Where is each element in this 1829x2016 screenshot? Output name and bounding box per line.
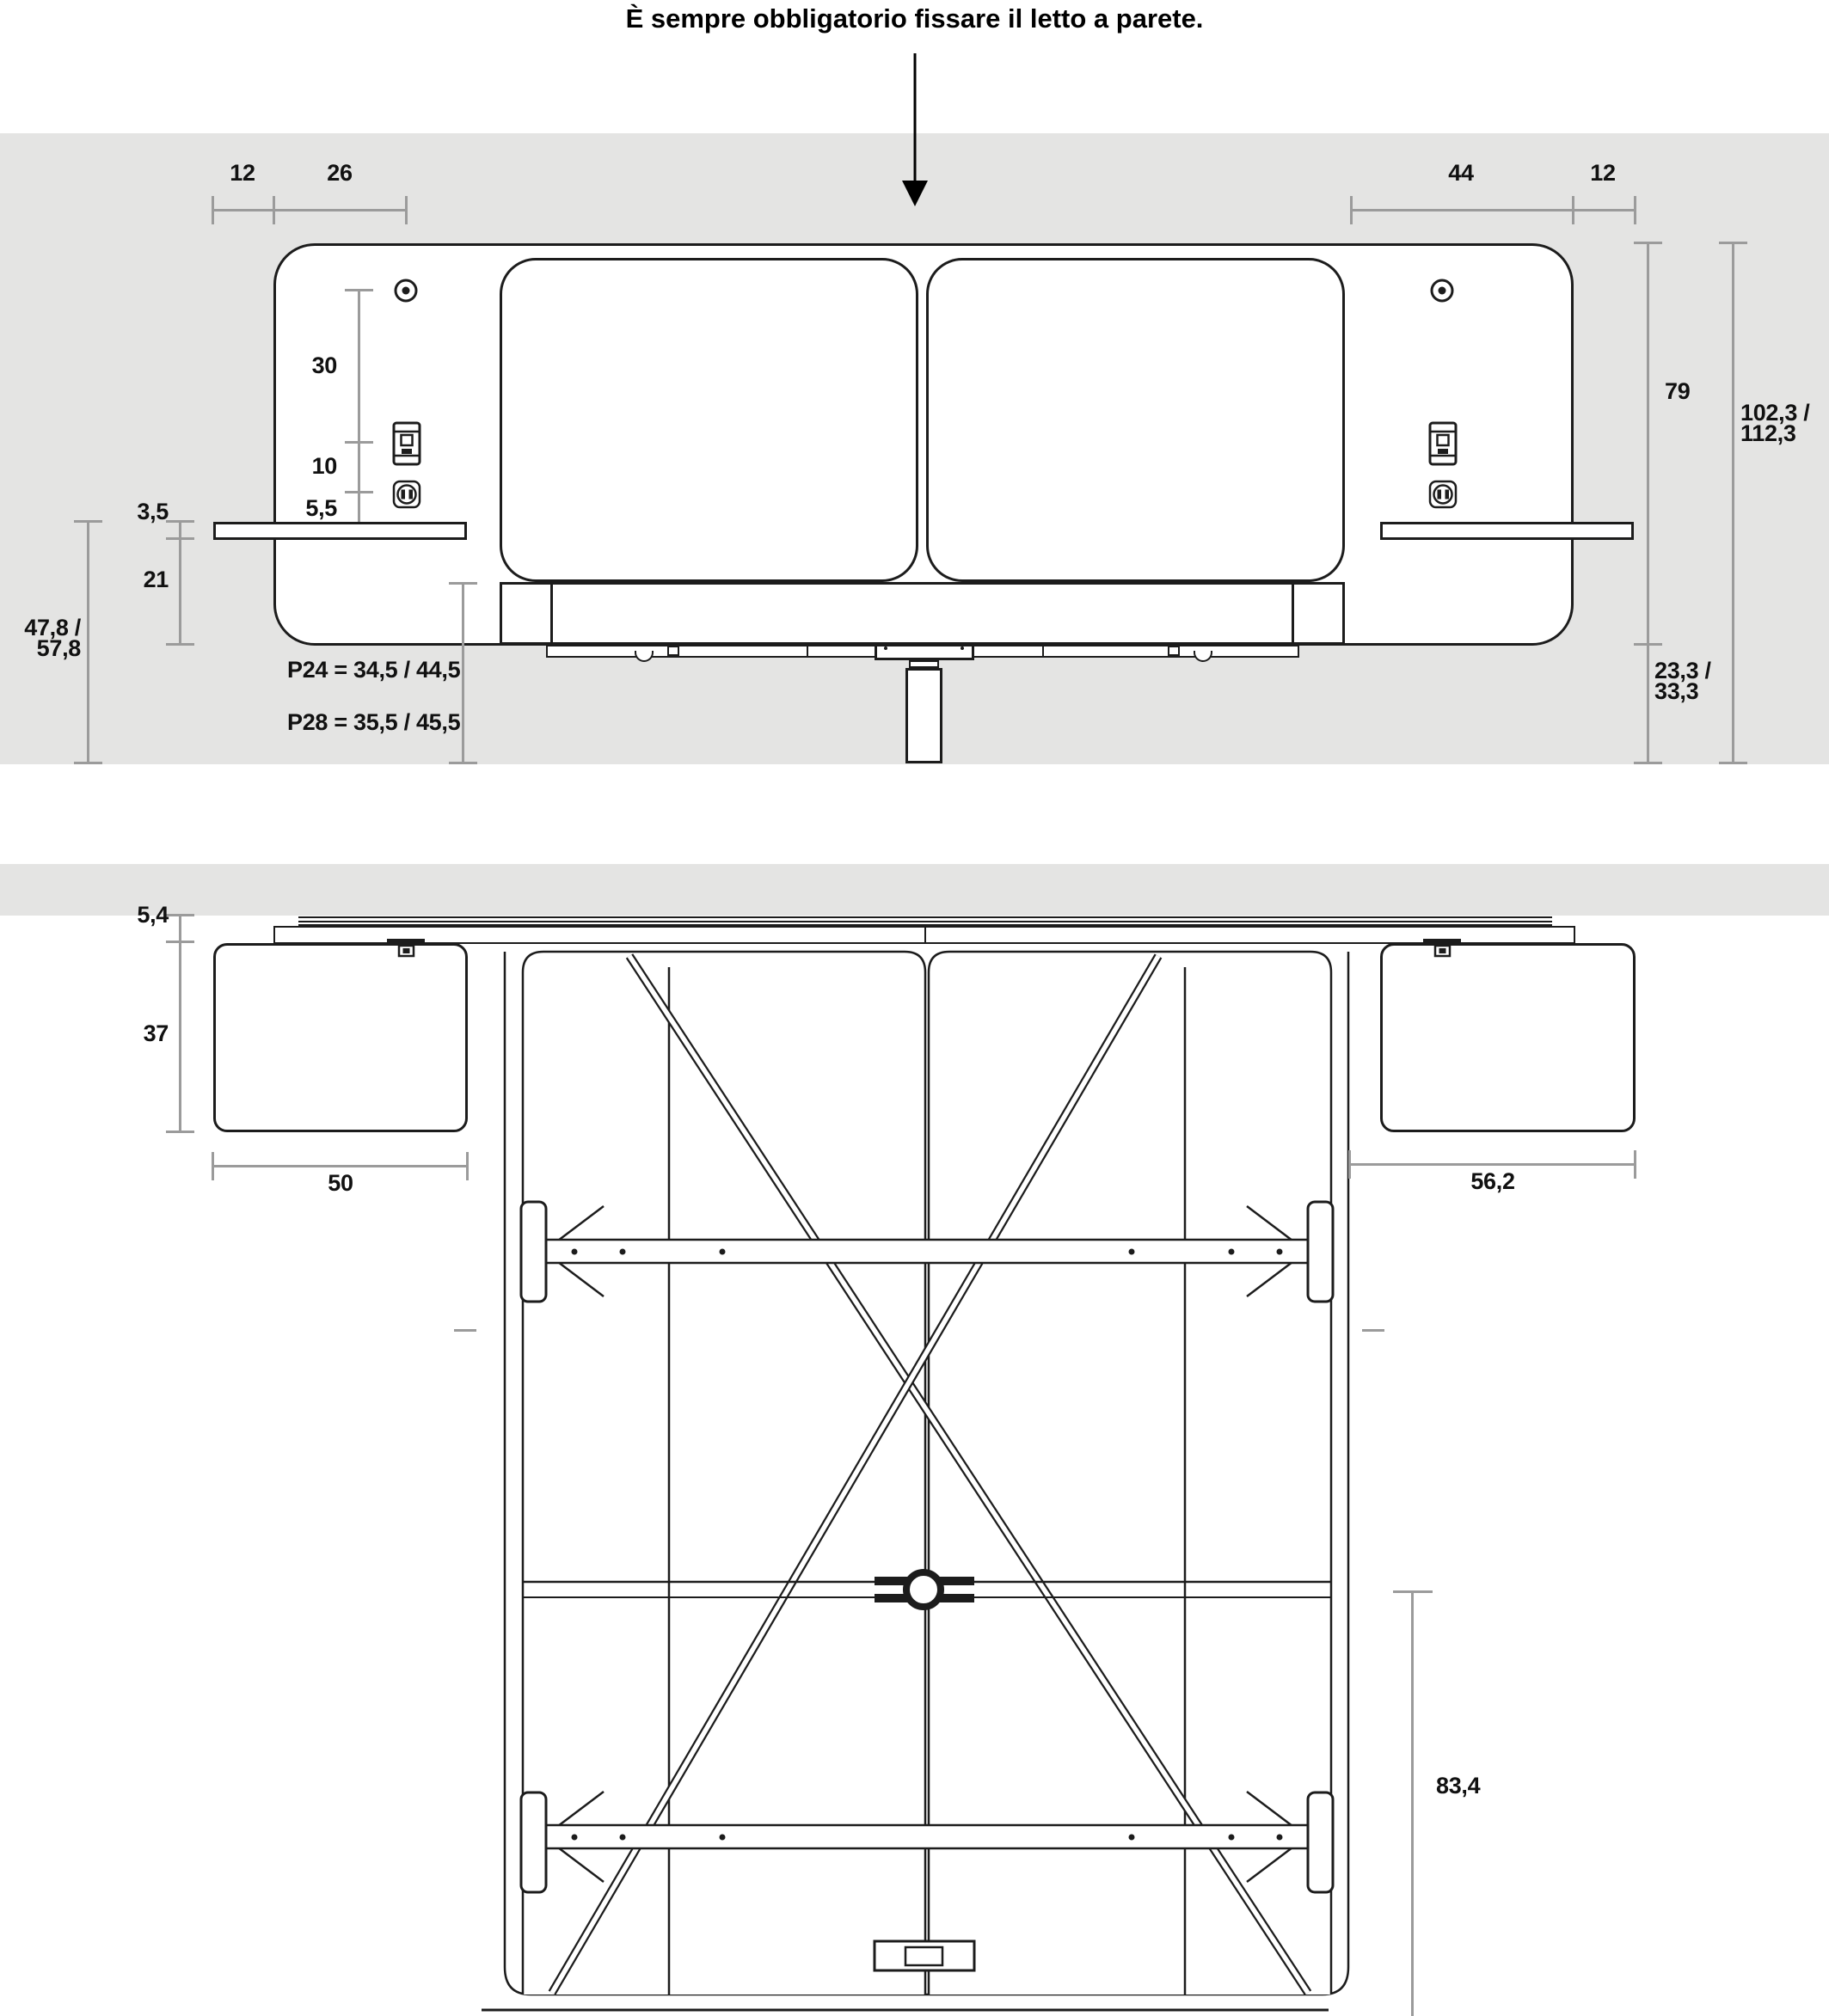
dim-label: 30 <box>284 354 337 377</box>
dim-label: 26 <box>273 162 407 185</box>
dim-tick <box>166 643 194 646</box>
shelf-right-front <box>1380 522 1634 540</box>
mech-bracket-right <box>1168 646 1180 656</box>
plate-pin-right <box>961 646 964 650</box>
dim-tick <box>345 441 373 444</box>
dim-label: 57,8 <box>7 637 81 660</box>
leg-ring-icon <box>906 1572 941 1607</box>
mech-divider-left <box>807 645 808 658</box>
dim-line-shelf-height <box>87 522 89 764</box>
dim-tick <box>405 196 408 224</box>
dim-tick <box>1362 1329 1384 1332</box>
nightstand-right-top <box>1380 943 1636 1132</box>
dim-line-total-height <box>1732 243 1734 764</box>
dim-tick <box>1719 242 1747 244</box>
frame-cap-line-left <box>550 585 553 642</box>
dim-tick <box>166 520 194 523</box>
cushion-right <box>926 258 1345 582</box>
dim-tick <box>1634 196 1636 224</box>
shelf-left-front <box>213 522 467 540</box>
center-leg-plate <box>875 644 974 660</box>
dim-line-platform <box>462 584 464 764</box>
mech-divider-right <box>1042 645 1044 658</box>
mid-rail <box>523 1577 1331 1602</box>
dim-line-accessories <box>358 291 360 522</box>
lower-crossbar <box>521 1792 1333 1892</box>
dim-label: 50 <box>213 1172 468 1195</box>
dim-tick <box>212 196 214 224</box>
dim-tick <box>1634 242 1662 244</box>
mandatory-wall-fixing-note: È sempre obbligatorio fissare il letto a… <box>0 3 1829 34</box>
wall-rail-line-2 <box>298 921 1552 922</box>
wall-top-view <box>0 864 1829 916</box>
dim-tick <box>74 762 102 764</box>
dim-tick <box>1634 643 1662 646</box>
center-leg <box>905 668 942 763</box>
dim-tick <box>166 941 194 943</box>
dim-label: 44 <box>1350 162 1572 185</box>
dim-tick <box>1350 196 1353 224</box>
dim-line-top-left <box>213 209 407 211</box>
dim-label: 33,3 <box>1654 680 1698 703</box>
dim-tick <box>449 762 477 764</box>
dim-line-shelf <box>179 522 181 645</box>
headboard-split-line <box>924 926 926 944</box>
dim-line-rail-to-foot <box>1411 1592 1414 2016</box>
mattress-left-top <box>523 952 925 1995</box>
dim-label: P24 = 34,5 / 44,5 <box>287 659 460 682</box>
frame-outline-top <box>505 952 1348 1995</box>
upper-crossbar <box>521 1202 1333 1302</box>
dim-tick <box>166 1131 194 1133</box>
leg-collar <box>909 660 939 668</box>
dim-tick <box>345 491 373 493</box>
dim-tick <box>74 520 102 523</box>
dim-label: P28 = 35,5 / 45,5 <box>287 711 460 734</box>
dim-label: 112,3 <box>1740 422 1796 445</box>
cross-brace-2 <box>552 956 1158 1993</box>
nightstand-left-top <box>213 943 468 1132</box>
dim-label: 3,5 <box>103 500 169 524</box>
dim-tick <box>1393 1590 1433 1593</box>
dim-tick <box>273 196 275 224</box>
dim-tick <box>166 537 194 540</box>
technical-drawing-page: È sempre obbligatorio fissare il letto a… <box>0 0 1829 2016</box>
dim-tick <box>1572 196 1574 224</box>
dim-label: 12 <box>1570 162 1636 185</box>
mattress-right-top <box>929 952 1331 1995</box>
dim-line-headboard-height <box>1647 243 1649 764</box>
dim-label: 21 <box>103 568 169 591</box>
dim-line-nightstand-depth <box>179 944 181 1132</box>
dim-tick <box>166 914 194 916</box>
dim-tick <box>454 1329 476 1332</box>
dim-label: 56,2 <box>1350 1170 1636 1193</box>
bed-frame-front <box>500 582 1345 645</box>
dim-tick <box>1719 762 1747 764</box>
cross-brace-1 <box>629 956 1308 1993</box>
wall-rail-line-1 <box>298 916 1552 918</box>
dim-label: 10 <box>284 455 337 478</box>
frame-cap-line-right <box>1292 585 1294 642</box>
foot-plate <box>875 1941 974 1970</box>
mech-bracket-left <box>667 646 679 656</box>
dim-tick <box>449 582 477 585</box>
dim-label: 5,4 <box>103 904 169 927</box>
dim-line-top-right <box>1352 209 1636 211</box>
dim-label: 37 <box>103 1022 169 1045</box>
dim-label: 5,5 <box>284 497 337 520</box>
plate-pin-left <box>884 646 887 650</box>
dim-line-nightstand-left <box>213 1165 468 1167</box>
dim-label: 79 <box>1665 380 1690 403</box>
dim-tick <box>345 289 373 291</box>
dim-tick <box>1634 762 1662 764</box>
cushion-left <box>500 258 918 582</box>
dim-label: 83,4 <box>1436 1774 1480 1798</box>
dim-label: 12 <box>212 162 273 185</box>
dim-line-nightstand-right <box>1350 1163 1636 1166</box>
